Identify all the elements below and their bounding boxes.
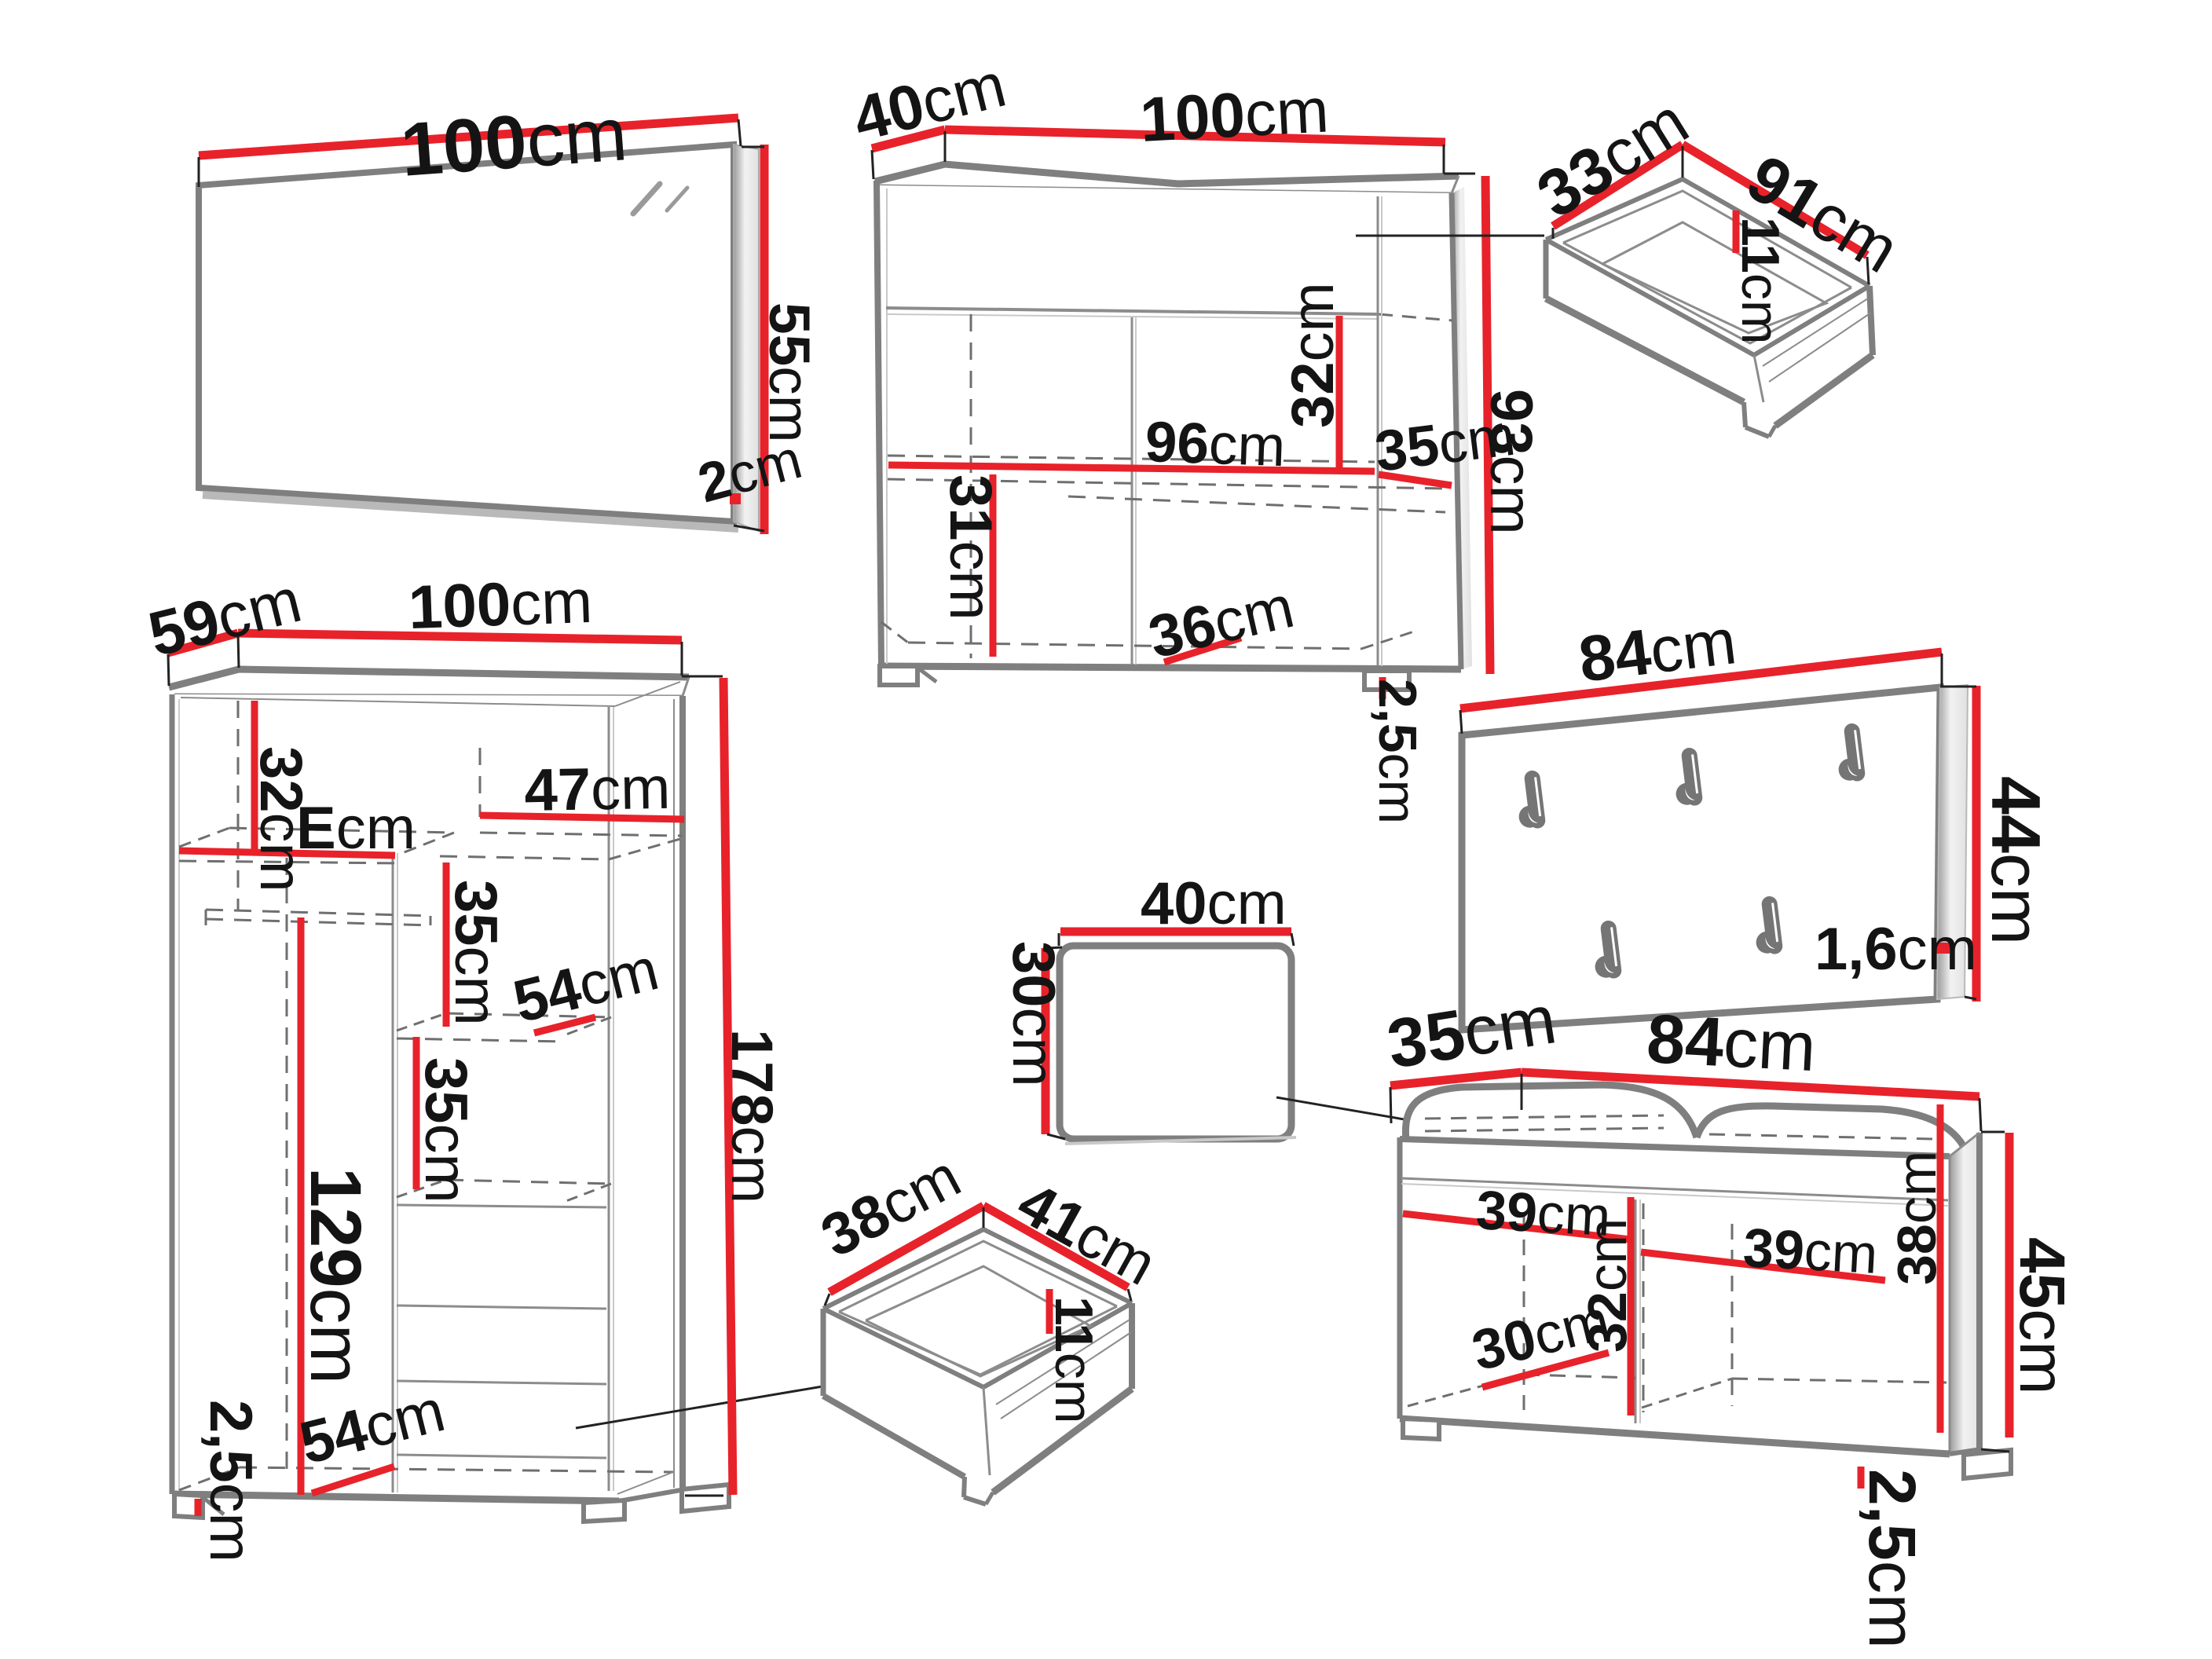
svg-text:44cm: 44cm <box>1977 776 2055 945</box>
svg-text:178cm: 178cm <box>720 1029 785 1203</box>
svg-text:47cm: 47cm <box>524 755 671 824</box>
svg-text:35cm: 35cm <box>442 880 509 1026</box>
svg-text:45cm: 45cm <box>2006 1237 2078 1395</box>
svg-text:2,5cm: 2,5cm <box>1855 1469 1929 1649</box>
svg-text:100cm: 100cm <box>1138 75 1330 155</box>
svg-text:100cm: 100cm <box>408 566 594 642</box>
svg-text:35cm: 35cm <box>412 1057 479 1203</box>
svg-text:32cm: 32cm <box>1280 282 1346 428</box>
svg-text:2,5cm: 2,5cm <box>197 1400 264 1562</box>
svg-text:129cm: 129cm <box>295 1167 375 1384</box>
svg-text:11cm: 11cm <box>1044 1296 1104 1424</box>
svg-text:2,5cm: 2,5cm <box>1368 679 1427 824</box>
svg-text:Ecm: Ecm <box>296 795 416 862</box>
svg-text:96cm: 96cm <box>1144 410 1286 478</box>
svg-text:38cm: 38cm <box>1886 1151 1947 1285</box>
svg-text:1,6cm: 1,6cm <box>1815 916 1977 983</box>
svg-text:93cm: 93cm <box>1478 389 1544 535</box>
svg-text:100cm: 100cm <box>398 92 630 192</box>
svg-text:55cm: 55cm <box>757 302 821 443</box>
svg-text:31cm: 31cm <box>937 474 1004 621</box>
svg-text:11cm: 11cm <box>1730 217 1790 345</box>
svg-text:30cm: 30cm <box>1000 941 1067 1087</box>
svg-text:40cm: 40cm <box>1141 870 1287 937</box>
svg-text:39cm: 39cm <box>1741 1217 1879 1285</box>
svg-text:84cm: 84cm <box>1645 999 1818 1086</box>
